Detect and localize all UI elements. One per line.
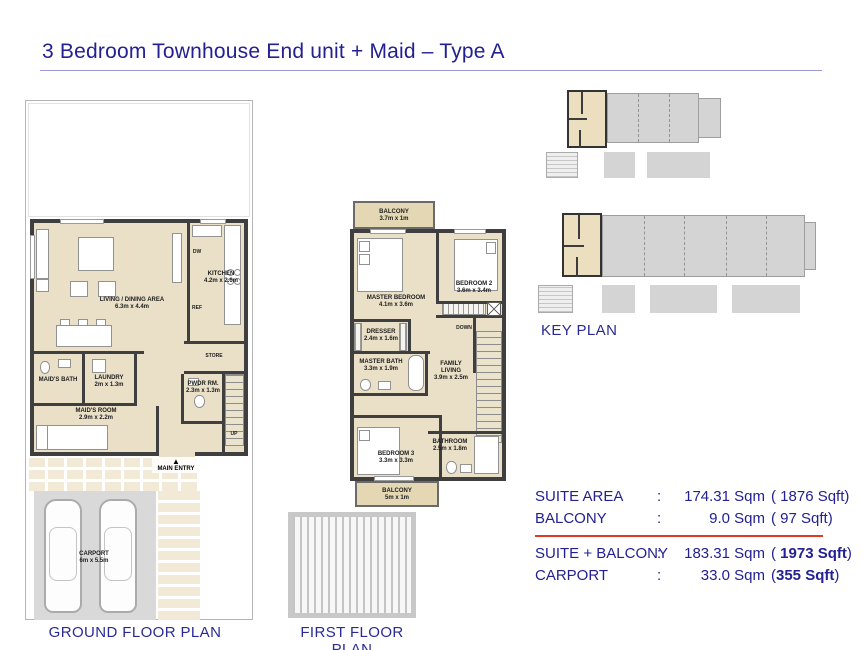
area-colon: : — [657, 486, 667, 508]
key-plan: KEY PLAN — [535, 85, 845, 350]
room-label-dresser: DRESSER 2.4m x 1.6m — [360, 329, 402, 343]
window-icon — [370, 229, 406, 234]
area-colon: : — [657, 508, 667, 530]
room-dims: 6.3m x 4.4m — [92, 304, 172, 311]
room-label-kitchen: KITCHEN 4.2m x 2.6m — [200, 271, 242, 285]
room-name: LIVING / DINING AREA — [92, 297, 172, 304]
key-plan-carport — [602, 285, 635, 313]
room-dims: 3.3m x 3.3m — [368, 458, 424, 465]
window-icon — [60, 219, 104, 224]
sqft-text: ( 97 Sqft) — [771, 510, 833, 527]
plot-garden — [28, 103, 250, 217]
tv-unit-icon — [172, 233, 182, 283]
pillow-icon — [359, 241, 370, 252]
area-colon: : — [657, 565, 667, 587]
first-floor-plan-label: FIRST FLOOR PLAN — [282, 624, 422, 650]
pillow-icon — [486, 242, 496, 254]
room-label-master-bedroom: MASTER BEDROOM 4.1m x 3.6m — [362, 295, 430, 309]
toilet-icon — [194, 395, 205, 408]
unit-divider — [766, 216, 767, 276]
wall — [184, 341, 244, 344]
key-plan-carport — [732, 285, 800, 313]
wall — [181, 421, 225, 424]
red-divider-line — [535, 535, 823, 537]
area-sqft: (355 Sqft) — [771, 565, 839, 587]
sink-icon — [58, 359, 71, 368]
room-dims: 2.4m x 1.6m — [360, 336, 402, 343]
area-colon: : — [657, 543, 667, 565]
room-name: FAMILY LIVING — [430, 361, 472, 375]
room-label-maids-bath: MAID'S BATH — [36, 377, 80, 384]
sqft-bold: 355 Sqft — [776, 567, 834, 584]
unit-divider — [669, 94, 670, 142]
toilet-icon — [446, 461, 457, 474]
label-ref: REF — [189, 305, 205, 311]
area-row-suite-balcony: SUITE + BALCONY : 183.31 Sqm ( 1973 Sqft… — [535, 543, 827, 565]
key-plan-highlight-unit — [562, 213, 602, 277]
room-dims: 3.9m x 2.5m — [430, 375, 472, 382]
room-name: BEDROOM 2 — [446, 281, 502, 288]
key-plan-carport-hatched — [538, 285, 573, 313]
entry-arrow-icon: ▲ — [152, 457, 200, 466]
area-label: CARPORT — [535, 565, 657, 587]
sqft-text: ( 1876 Sqft) — [771, 488, 849, 505]
room-name: BALCONY — [365, 488, 429, 495]
chair-icon — [60, 319, 70, 326]
closet-icon — [487, 302, 501, 316]
room-dims: 3.7m x 1m — [361, 216, 427, 223]
first-floor-plan: BALCONY 3.7m x 1m — [345, 195, 515, 510]
key-plan-carport — [647, 152, 710, 178]
wall — [184, 371, 244, 374]
room-label-family-living: FAMILY LIVING 3.9m x 2.5m — [430, 361, 472, 382]
room-dims: 2m x 1.3m — [86, 382, 132, 389]
key-plan-carport — [650, 285, 717, 313]
room-label-carport: CARPORT 6m x 5.5m — [64, 551, 124, 565]
room-label-balcony-bottom: BALCONY 5m x 1m — [365, 488, 429, 502]
area-sqm: 9.0 Sqm — [667, 508, 771, 530]
key-plan-building — [698, 98, 721, 138]
room-name: CARPORT — [64, 551, 124, 558]
key-plan-wall — [579, 130, 581, 148]
ground-floor-plan-label: GROUND FLOOR PLAN — [40, 624, 230, 641]
ground-floor-plan: LIVING / DINING AREA 6.3m x 4.4m KITCHEN… — [25, 100, 253, 620]
key-plan-wall — [569, 118, 587, 120]
room-label-master-bath: MASTER BATH 3.3m x 1.9m — [356, 359, 406, 373]
room-name: DRESSER — [360, 329, 402, 336]
area-sqft: ( 97 Sqft) — [771, 508, 833, 530]
wall — [428, 431, 502, 434]
toilet-icon — [360, 379, 371, 391]
window-icon — [454, 229, 486, 234]
area-row-carport: CARPORT : 33.0 Sqm (355 Sqft) — [535, 565, 827, 587]
window-icon — [374, 476, 414, 481]
kitchen-sink-icon — [192, 225, 222, 237]
area-label: SUITE + BALCONY — [535, 543, 657, 565]
room-dims: 2.3m x 1.3m — [182, 388, 224, 395]
sqft-bold: 1973 Sqft — [780, 545, 847, 562]
pillow-icon — [36, 425, 48, 450]
area-row-balcony: BALCONY : 9.0 Sqm ( 97 Sqft) — [535, 508, 827, 530]
room-label-bedroom2: BEDROOM 2 3.6m x 3.4m — [446, 281, 502, 295]
armchair-icon — [98, 281, 116, 297]
area-sqm: 183.31 Sqm — [667, 543, 771, 565]
area-sqm: 174.31 Sqm — [667, 486, 771, 508]
room-dims: 5m x 1m — [365, 495, 429, 502]
room-name: MASTER BEDROOM — [362, 295, 430, 302]
wall — [408, 319, 411, 353]
balcony-bottom: BALCONY 5m x 1m — [355, 481, 439, 507]
wall — [34, 351, 144, 354]
chair-icon — [78, 319, 88, 326]
room-name: KITCHEN — [200, 271, 242, 278]
area-row-suite: SUITE AREA : 174.31 Sqm ( 1876 Sqft) — [535, 486, 827, 508]
bathtub-icon — [408, 355, 424, 391]
toilet-icon — [40, 361, 50, 374]
room-name: MAID'S ROOM — [60, 408, 132, 415]
label-dw: DW — [190, 249, 204, 255]
washer-icon — [92, 359, 106, 373]
room-name: BALCONY — [361, 209, 427, 216]
area-sqft: ( 1973 Sqft) — [771, 543, 852, 565]
room-name: MAID'S BATH — [36, 377, 80, 384]
ground-floor-house: LIVING / DINING AREA 6.3m x 4.4m KITCHEN… — [30, 219, 248, 456]
key-plan-carport-hatched — [546, 152, 578, 178]
area-label: SUITE AREA — [535, 486, 657, 508]
room-label-living: LIVING / DINING AREA 6.3m x 4.4m — [92, 297, 172, 311]
area-sqm: 33.0 Sqm — [667, 565, 771, 587]
wall — [156, 406, 159, 452]
room-dims: 6m x 5.5m — [64, 558, 124, 565]
room-label-maids-room: MAID'S ROOM 2.9m x 2.2m — [60, 408, 132, 422]
label-up: UP — [224, 431, 244, 437]
entry-text: MAIN ENTRY — [152, 466, 200, 473]
room-dims: 2.5m x 1.8m — [428, 446, 472, 453]
pillow-icon — [359, 430, 370, 441]
room-name: PWDR RM. — [182, 381, 224, 388]
sqft-text: ( — [771, 545, 780, 562]
sqft-text: ) — [847, 545, 852, 562]
pillow-icon — [359, 254, 370, 265]
wall — [82, 354, 85, 405]
balcony-top: BALCONY 3.7m x 1m — [353, 201, 435, 229]
stairs-icon — [476, 331, 502, 443]
room-name: LAUNDRY — [86, 375, 132, 382]
room-name: MASTER BATH — [356, 359, 406, 366]
room-name: BEDROOM 3 — [368, 451, 424, 458]
wall — [354, 319, 410, 322]
area-sqft: ( 1876 Sqft) — [771, 486, 849, 508]
sink-icon — [378, 381, 391, 390]
wall — [425, 351, 428, 396]
floor-plan-page: 3 Bedroom Townhouse End unit + Maid – Ty… — [0, 0, 867, 650]
area-label: BALCONY — [535, 508, 657, 530]
coffee-table-icon — [78, 237, 114, 271]
sqft-text: ) — [834, 567, 839, 584]
key-plan-highlight-unit — [567, 90, 607, 148]
unit-divider — [726, 216, 727, 276]
chair-icon — [96, 319, 106, 326]
room-label-pwdr: PWDR RM. 2.3m x 1.3m — [182, 381, 224, 395]
room-dims: 3.6m x 3.4m — [446, 288, 502, 295]
wall — [354, 351, 430, 354]
key-plan-wall — [578, 215, 580, 239]
page-title: 3 Bedroom Townhouse End unit + Maid – Ty… — [42, 40, 505, 64]
sink-icon — [460, 464, 472, 473]
dining-table-icon — [56, 325, 112, 347]
wall — [134, 354, 137, 405]
room-dims: 3.3m x 1.9m — [356, 366, 406, 373]
room-label-bedroom3: BEDROOM 3 3.3m x 3.3m — [368, 451, 424, 465]
key-plan-building — [607, 93, 699, 143]
unit-divider — [684, 216, 685, 276]
window-icon — [200, 219, 226, 224]
area-table: SUITE AREA : 174.31 Sqm ( 1876 Sqft) BAL… — [535, 486, 827, 587]
wall — [354, 393, 428, 396]
room-label-balcony-top: BALCONY 3.7m x 1m — [361, 209, 427, 223]
unit-divider — [638, 94, 639, 142]
main-entry-label: ▲ MAIN ENTRY — [152, 457, 200, 473]
sofa-icon — [36, 229, 49, 279]
label-store: STORE — [186, 353, 242, 359]
wall — [187, 223, 190, 341]
key-plan-wall — [564, 245, 584, 247]
key-plan-label: KEY PLAN — [541, 322, 621, 339]
first-floor-house: MASTER BEDROOM 4.1m x 3.6m BEDROOM 2 3.6… — [350, 229, 506, 481]
wall — [436, 233, 439, 303]
key-plan-building — [804, 222, 816, 270]
window-icon — [30, 235, 35, 279]
label-down: DOWN — [448, 325, 480, 331]
room-dims: 2.9m x 2.2m — [60, 415, 132, 422]
room-label-bathroom: BATHROOM 2.5m x 1.8m — [428, 439, 472, 453]
title-underline — [40, 70, 822, 71]
side-paving — [158, 491, 200, 620]
key-plan-wall — [581, 92, 583, 114]
pergola-shade — [288, 512, 416, 618]
room-dims: 4.1m x 3.6m — [362, 302, 430, 309]
unit-divider — [644, 216, 645, 276]
key-plan-wall — [576, 257, 578, 277]
armchair-icon — [70, 281, 88, 297]
wall — [354, 415, 442, 418]
key-plan-building — [602, 215, 805, 277]
shower-icon — [474, 436, 499, 474]
room-name: BATHROOM — [428, 439, 472, 446]
room-dims: 4.2m x 2.6m — [200, 278, 242, 285]
sofa-icon — [36, 279, 49, 292]
key-plan-carport — [604, 152, 635, 178]
wall — [34, 403, 137, 406]
wardrobe-icon — [442, 303, 486, 315]
room-label-laundry: LAUNDRY 2m x 1.3m — [86, 375, 132, 389]
